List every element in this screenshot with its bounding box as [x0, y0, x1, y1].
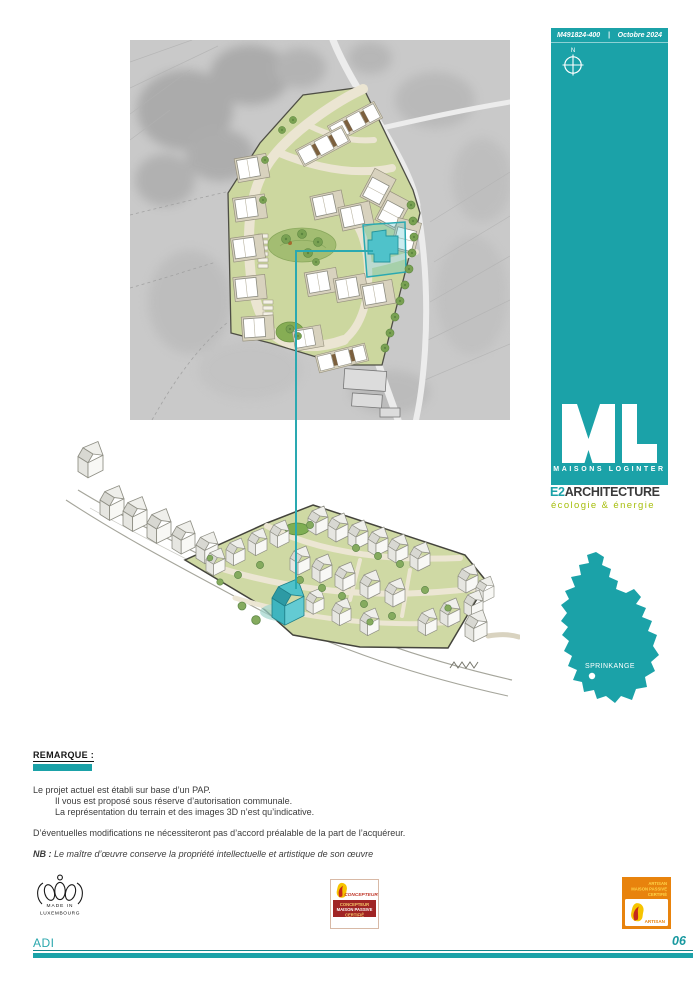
- remarque-teal-underline: [33, 764, 92, 771]
- svg-text:ARTISAN: ARTISAN: [648, 881, 667, 886]
- e2-prefix: E2: [550, 485, 565, 499]
- connector-line-vertical: [295, 251, 297, 589]
- e2-architecture-logo: E2ARCHITECTURE: [550, 485, 675, 499]
- footer-page-number: 06: [672, 934, 686, 948]
- remarque-title: REMARQUE :: [33, 750, 94, 762]
- footer-project-code: ADI: [33, 936, 55, 950]
- site-plan-aerial: [130, 40, 510, 420]
- remarque-nb: NB : Le maître d’œuvre conserve la propr…: [33, 849, 373, 859]
- footer-thin-rule: [33, 950, 693, 951]
- svg-text:CONCEPTEUR: CONCEPTEUR: [344, 892, 378, 898]
- sidebar-header: M491824-400 | Octobre 2024: [551, 28, 668, 43]
- remarque-line-3: La représentation du terrain et des imag…: [55, 807, 314, 817]
- remarque-line-1: Le projet actuel est établi sur base d’u…: [33, 785, 211, 795]
- crown-icon: [38, 875, 83, 904]
- sidebar: M491824-400 | Octobre 2024 N ML MAISONS …: [551, 28, 668, 485]
- e2-rest: ARCHITECTURE: [565, 485, 660, 499]
- connector-line-horizontal: [295, 250, 373, 252]
- concepteur-maison-passive-badge: CONCEPTEUR CONCEPTEUR MAISON PASSIVE CER…: [330, 879, 379, 929]
- nb-label: NB :: [33, 849, 52, 859]
- header-separator: |: [608, 32, 610, 39]
- svg-text:LUXEMBOURG: LUXEMBOURG: [40, 911, 80, 917]
- location-dot: [589, 673, 595, 679]
- artisan-maison-passive-badge: ARTISAN MAISON PASSIVE CERTIFIÉ ARTISAN: [622, 877, 671, 929]
- svg-text:CERTIFIÉ: CERTIFIÉ: [345, 912, 364, 917]
- ml-logo: ML: [562, 404, 657, 464]
- remarque-line-2: Il vous est proposé sous réserve d’autor…: [55, 796, 292, 806]
- document-page: M491824-400 | Octobre 2024 N ML MAISONS …: [0, 0, 700, 989]
- brand-tagline: écologie & énergie: [551, 500, 676, 511]
- luxembourg-map: SPRINKANGE: [556, 549, 670, 709]
- svg-text:MAISON PASSIVE: MAISON PASSIVE: [631, 886, 667, 891]
- svg-text:ARTISAN: ARTISAN: [645, 919, 666, 924]
- doc-date: Octobre 2024: [618, 32, 662, 39]
- remarque-paragraph-2: D’éventuelles modifications ne nécessite…: [33, 828, 405, 838]
- made-in-luxembourg-logo: MADE IN LUXEMBOURG: [32, 873, 88, 923]
- svg-text:N: N: [571, 48, 575, 54]
- svg-text:MADE IN: MADE IN: [47, 903, 74, 909]
- location-label: SPRINKANGE: [585, 663, 635, 670]
- nb-text: Le maître d’œuvre conserve la propriété …: [54, 849, 373, 859]
- doc-number: M491824-400: [557, 32, 600, 39]
- site-3d-view: [60, 430, 520, 712]
- footer-teal-bar: [33, 953, 693, 958]
- svg-text:CERTIFIÉ: CERTIFIÉ: [648, 892, 667, 897]
- ml-logo-caption: MAISONS LOGINTER: [551, 466, 668, 473]
- compass-icon: N: [560, 45, 586, 79]
